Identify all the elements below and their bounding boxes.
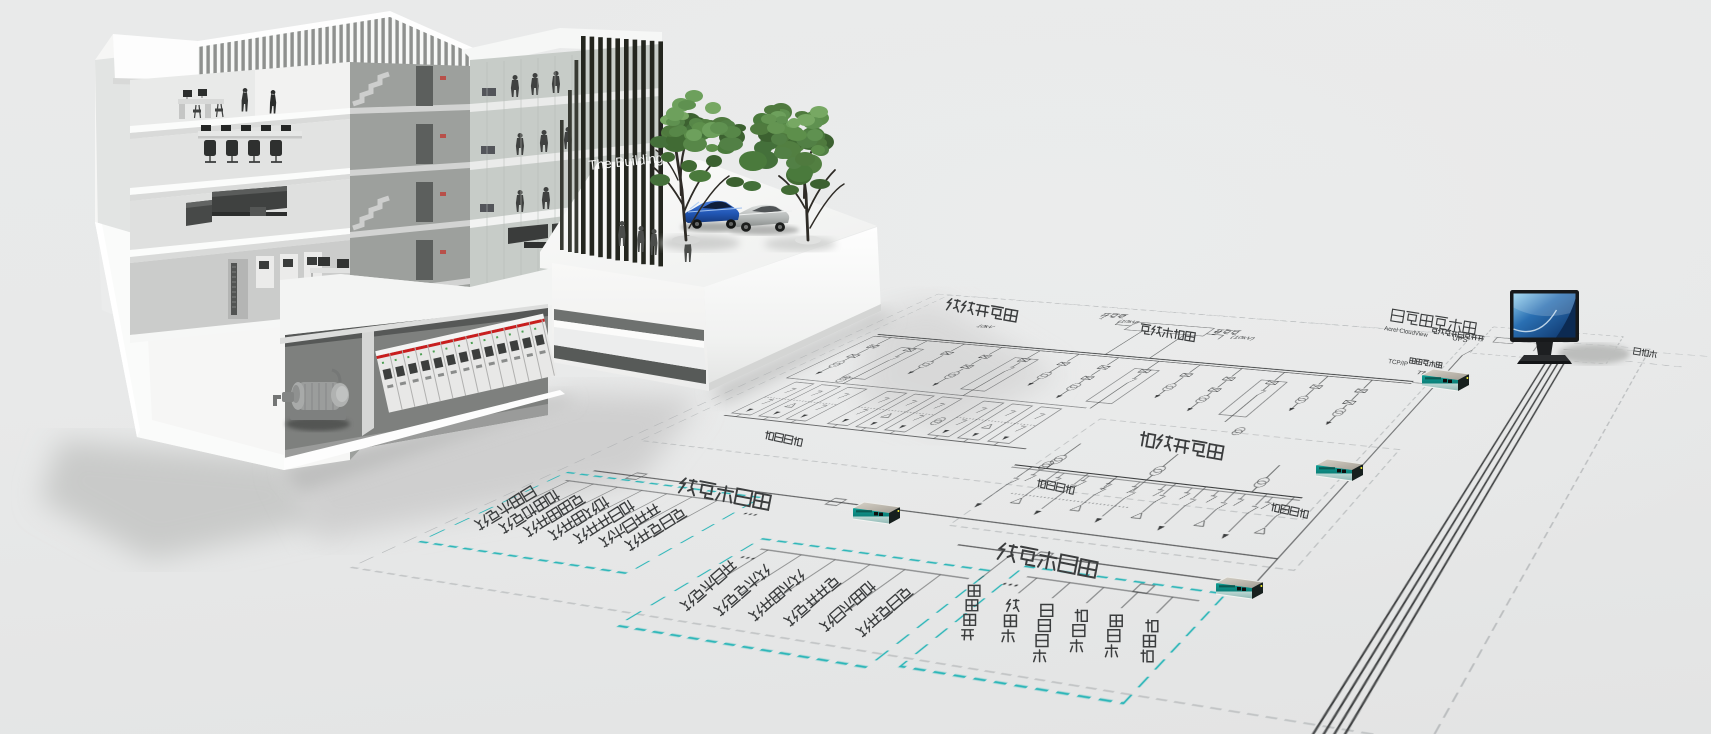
svg-text:TCP/IP: TCP/IP (1388, 358, 1409, 368)
svg-text:UPS: UPS (1452, 333, 1469, 344)
svg-text:Acrel CloudView: Acrel CloudView (1384, 326, 1429, 339)
